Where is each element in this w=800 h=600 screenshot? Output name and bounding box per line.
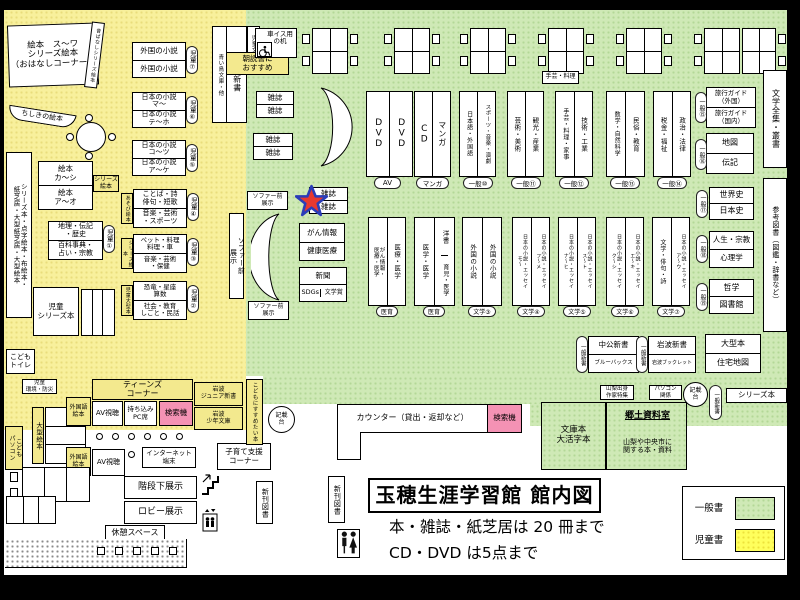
shelf-literature-5: 日本の小説・エッセイ ナ〜ヒ 日本の小説・エッセイ ス〜ト — [558, 217, 596, 306]
tag-series-ehon: シリーズ絵本 — [121, 238, 133, 269]
cell-top: 絵本 カ〜シ — [39, 162, 92, 185]
col-right: 日本の小説・エッセイ ス〜ト — [577, 218, 596, 305]
cell-top: 地図 — [707, 134, 753, 153]
stool — [151, 547, 159, 555]
wheelchair-icon — [257, 42, 272, 57]
kids-pc: こども パソコン — [5, 426, 23, 470]
stool — [169, 547, 177, 555]
col-right: 日本の小説・エッセイ エ〜キ — [625, 218, 644, 305]
col-right: 外国の小説 — [482, 218, 502, 305]
childcare-corner: 子育て支援 コーナー — [217, 443, 271, 470]
reading-table — [312, 28, 348, 74]
cell-top: 地理・伝記 ・歴史 — [49, 222, 102, 240]
cell-bottom: 百科事典・ 占い・宗教 — [49, 240, 102, 259]
cell-top: 中公新書 — [589, 337, 638, 354]
cell-row: SDGs 文学賞 — [300, 284, 346, 301]
av-booth-1: AV視聴 — [92, 401, 123, 426]
chair — [432, 56, 440, 66]
av-booth-2: AV視聴 — [92, 449, 125, 476]
reading-table — [394, 28, 430, 74]
cell-top: 洋書 — [441, 218, 448, 255]
shelf-ogata-ehon: 大型絵本 — [32, 407, 44, 464]
chair — [616, 56, 624, 66]
col-left: 日本の小説・エッセイ モ〜 — [513, 218, 531, 305]
cell-bottom: 雑誌 — [257, 104, 293, 117]
cell-bottom: 雑誌 — [254, 146, 292, 159]
cell-bottom: 旅行ガイド （国内） — [707, 107, 755, 127]
byod-pc-seat: 持ち込み PC席 — [124, 401, 157, 426]
shelf-bunko-large-print: 文庫本 大活字本 — [541, 402, 606, 470]
sofa-front-display-top: ソファー前 展示 — [247, 191, 288, 210]
new-books-shelf-2: 新刊図書 — [328, 476, 345, 523]
shelf-literature-3: 外国の小説 外国の小説 — [462, 217, 502, 306]
badge-general-13: 一般⑬ — [610, 177, 640, 189]
cell-top: ペット・料理 料理・車 — [134, 235, 186, 253]
chair — [432, 34, 440, 44]
shelf-literature-4: 日本の小説・エッセイ モ〜 日本の小説・エッセイ フ〜メ — [512, 217, 550, 306]
stool — [133, 547, 141, 555]
elevator-icon — [201, 508, 219, 532]
sofa-front-display-v: ソファー前 展示 — [229, 213, 244, 299]
col-left: 数学・自然科学 — [607, 92, 625, 176]
tag-asobi-ehon: あそび絵本 — [121, 193, 133, 224]
shelf-general-14: 税金・福祉 政治・法律 — [653, 91, 691, 177]
shelf-children-4: ことば・詩 俳句・短歌 音楽・芸術 ・スポーツ — [133, 189, 187, 228]
shelf-ehon: 絵本 カ〜シ 絵本 ア〜オ — [38, 161, 93, 210]
legend-general-swatch — [735, 497, 775, 520]
legend-general-label: 一般書 — [691, 499, 727, 519]
col-left: 手芸・料理・家事 — [556, 92, 574, 176]
cell-bottom: 健康医療 — [300, 242, 344, 261]
badge-medical-1: 医育 — [376, 306, 398, 317]
col-left: DVD — [367, 92, 389, 176]
shelf-life-religion: 人生・宗教 心理学 — [709, 231, 754, 268]
seat — [112, 433, 119, 440]
legend-children-swatch — [735, 529, 775, 552]
shelf-literature-7: 文学・俳句・詩 日本の小説・エッセイ ア〜ウ — [652, 217, 690, 306]
badge-general-14: 一般⑭ — [657, 177, 687, 189]
search-terminal-2: 検索機 — [487, 404, 522, 433]
badge-jido-2: 児童② — [187, 285, 199, 313]
shelf-children-7: 外国の小説 外国の小説 — [132, 42, 186, 78]
shelf-series-books: シリーズ本 — [726, 388, 787, 403]
col-right: 医療・医学 — [387, 218, 406, 305]
shelf-large-books: 大型本 住宅地図 — [705, 334, 761, 373]
badge-shinsho-3: 一般新書 — [709, 385, 722, 420]
loan-rule-2: CD・DVD は5点まで — [389, 541, 649, 563]
internet-terminal: インターネット 端末 — [142, 447, 196, 468]
cell-bottom: 外国の小説 — [133, 60, 185, 78]
col-right: 民俗・教育 — [625, 92, 644, 176]
cell-sdgs: SDGs — [300, 289, 321, 296]
chair — [384, 56, 392, 66]
label-pc-related: パソコン 関係 — [649, 385, 682, 400]
reading-table-group — [302, 28, 358, 74]
floor-map: シリーズ本・点字絵本・布絵本・ 紙芝居・大型紙芝居・大型絵本 絵本 ス〜ワ シリ… — [0, 0, 800, 600]
chair — [778, 56, 786, 66]
badge-av: AV — [374, 177, 401, 189]
cell-bottom: ブルーバックス — [589, 354, 638, 372]
seat — [128, 433, 135, 440]
cell-top: 日本の小説 マ〜 — [133, 93, 185, 110]
col-left: 外国の小説 — [463, 218, 482, 305]
reading-table-group — [538, 28, 594, 74]
teens-corner: ティーンズ コーナー — [92, 379, 193, 400]
shelf-series-kamishibai-strip: シリーズ本・点字絵本・布絵本・ 紙芝居・大型紙芝居・大型絵本 — [6, 152, 32, 318]
badge-general-19: 一般⑲ — [696, 283, 708, 311]
cell-bungakusho: 文学賞 — [321, 290, 346, 297]
stairs-icon — [200, 472, 220, 496]
badge-general-15: 一般⑮ — [695, 92, 707, 123]
badge-shinsho-2: 一般新書 — [636, 336, 648, 373]
reading-table-group — [460, 28, 516, 74]
label-shugei-ryori: 手芸・料理 — [542, 71, 579, 84]
shelf-magazines-2: 雑誌 雑誌 — [253, 133, 293, 160]
cell-newspaper: 新聞 — [300, 268, 346, 284]
shelf-map-biography: 地図 伝記 — [706, 133, 754, 174]
frame-top — [0, 0, 800, 10]
col-left: 文学・俳句・詩 — [653, 218, 671, 305]
col-right: マンガ — [432, 92, 450, 176]
shelf-literature-anthology: 文学全集・叢書 — [763, 70, 787, 168]
kids-toilet: こども トイレ — [6, 349, 35, 374]
shelf-magazines-1: 雑誌 雑誌 — [256, 91, 294, 118]
reading-table-group — [732, 28, 786, 74]
col-left: 日本の小説・エッセイ ク〜シ — [607, 218, 625, 305]
col-right: 技術・工業 — [574, 92, 593, 176]
chair — [694, 56, 702, 66]
badge-medical-2: 医育 — [423, 306, 445, 317]
badge-jido-4: 児童④ — [187, 193, 199, 221]
cell-top: 大型本 — [706, 335, 760, 353]
stool — [115, 547, 123, 555]
cell-bottom: 住宅地図 — [706, 353, 760, 372]
tag-foreign-ehon-1: 外国語 絵本 — [66, 397, 91, 426]
reading-table — [470, 28, 506, 74]
col-left: 青い鳥文庫・他 — [213, 27, 226, 122]
seat — [96, 433, 103, 440]
shelf-children-5: 日本の小説 コ〜ツ 日本の小説 ア〜ケ — [132, 140, 186, 176]
wheelchair-desk: 車イス用 の机 — [255, 28, 297, 58]
badge-literature-4: 文学④ — [517, 306, 545, 317]
lobby-display: ロビー展示 — [124, 501, 197, 524]
reading-table — [626, 28, 662, 74]
chair — [664, 56, 672, 66]
shelf-iwanami-shonen: 岩波 少年文庫 — [194, 407, 243, 430]
cell-top: 岩波新書 — [649, 337, 695, 354]
chair — [350, 34, 358, 44]
cell-bottom: 岩波ブックレット — [649, 354, 695, 372]
badge-jido-5: 児童⑤ — [186, 144, 198, 172]
shelf-iwanami-junior: 岩波 ジュニア新書 — [194, 382, 243, 406]
label-yamanashi-authors: 山梨出身 作家特集 — [600, 385, 634, 400]
col-left: 税金・福祉 — [654, 92, 672, 176]
badge-jido-3: 児童③ — [187, 238, 199, 266]
shelf-general-13: 数学・自然科学 民俗・教育 — [606, 91, 645, 177]
col-left: 日本の小説・エッセイ ナ〜ヒ — [559, 218, 577, 305]
shelf-dvd: DVD DVD — [366, 91, 413, 177]
reading-table-group — [616, 28, 672, 74]
sofa-crescent-upper — [313, 85, 355, 169]
chair — [10, 472, 18, 482]
rest-space-area — [5, 539, 187, 568]
badge-general-10: 一般⑩ — [463, 177, 493, 189]
badge-jido-6: 児童⑥ — [186, 96, 198, 124]
col-left: がん情報・ 医療・医学 — [369, 218, 387, 305]
locker-shelf — [6, 496, 56, 524]
chair — [694, 34, 702, 44]
under-stairs-display: 階段下展示 — [124, 476, 197, 499]
round-table — [76, 122, 106, 152]
shelf-newspaper: 新聞 SDGs 文学賞 — [299, 267, 347, 302]
shelf-iwanami-shinsho: 岩波新書 岩波ブックレット — [648, 336, 696, 373]
shelf-reference-books: 参考図書（図鑑・辞書など） — [763, 178, 787, 332]
cell-top: 哲学 — [710, 280, 753, 296]
frame-right — [787, 0, 800, 600]
service-counter: カウンター（貸出・返却など） — [337, 404, 488, 433]
cell-top: がん情報 — [300, 224, 344, 242]
cell-top: 雑誌 — [257, 92, 293, 104]
writing-stand-1: 記載 台 — [268, 406, 295, 433]
page-title: 玉穂生涯学習館 館内図 — [368, 478, 601, 513]
shelf-general-11: 芸術・美術 観光・産業 — [507, 91, 544, 177]
col-right: 日本の小説・エッセイ フ〜メ — [531, 218, 550, 305]
chair — [778, 34, 786, 44]
location-star-marker — [295, 184, 328, 217]
tag-series-ehon-2: シリーズ 絵本 — [93, 175, 119, 192]
cell-bottom: 心理学 — [710, 249, 753, 267]
cell-bottom: 日本の小説 ア〜ケ — [133, 158, 185, 176]
cell-bottom: 伝記 — [707, 153, 753, 173]
cell-top: 旅行ガイド （外国） — [707, 88, 755, 107]
cell-bottom: 日本の小説 テ〜ホ — [133, 110, 185, 128]
new-books-shelf-1: 新刊図書 — [256, 481, 273, 524]
tag-jido-ogata: 児童大型本 — [121, 285, 133, 316]
legend: 一般書 児童書 — [682, 486, 785, 560]
shelf-kids-recommend: こどもにすすめたい本 — [246, 379, 263, 445]
shelf-cd-manga: CD マンガ — [414, 91, 451, 177]
badge-general-18: 一般⑱ — [696, 235, 708, 263]
col-right: 日本の小説・エッセイ ア〜ウ — [671, 218, 690, 305]
chair — [616, 34, 624, 44]
col-left: CD — [415, 92, 432, 176]
shelf-travel-guide: 旅行ガイド （外国） 旅行ガイド （国内） — [706, 87, 756, 128]
reading-table — [548, 28, 584, 74]
chair — [302, 34, 310, 44]
col-right: スポーツ・音楽・演劇 — [477, 92, 495, 176]
chair — [460, 56, 468, 66]
col-right: 観光・産業 — [525, 92, 543, 176]
search-terminal-1: 検索機 — [159, 401, 193, 426]
frame-bottom — [0, 575, 800, 600]
cell-top: ことば・詩 俳句・短歌 — [134, 190, 186, 208]
badge-literature-6: 文学⑥ — [611, 306, 639, 317]
cell-top: 恐竜・星座 算数 — [134, 282, 186, 300]
cell-bottom: 育児・医学 — [441, 255, 448, 305]
badge-literature-7: 文学⑦ — [657, 306, 685, 317]
cell-bottom: 音楽・芸術 ・スポーツ — [134, 208, 186, 227]
cell-top: 外国の小説 — [133, 43, 185, 60]
shelf-medical-1: がん情報・ 医療・医学 医療・医学 — [368, 217, 406, 306]
chair — [384, 34, 392, 44]
shelf-medical-2: 医学・医学 洋書 育児・医学 — [414, 217, 455, 306]
frame-left — [0, 0, 4, 600]
cell-top: 人生・宗教 — [710, 232, 753, 249]
cell-top: 世界史 — [710, 188, 753, 203]
badge-shinsho-1: 一般新書 — [576, 336, 588, 373]
chair — [538, 34, 546, 44]
shelf-children-3: ペット・料理 料理・車 音楽・芸術 ・保健 — [133, 234, 187, 273]
seat — [128, 451, 135, 458]
shelf-children-1: 地理・伝記 ・歴史 百科事典・ 占い・宗教 — [48, 221, 103, 260]
badge-jido-7: 児童⑦ — [186, 46, 198, 74]
badge-manga: マンガ — [416, 177, 449, 189]
col-left: 芸術・美術 — [508, 92, 525, 176]
shelf-cancer-info: がん情報 健康医療 — [299, 223, 345, 261]
shelf-history: 世界史 日本史 — [709, 187, 754, 220]
service-counter-leg — [337, 432, 361, 460]
col-right: DVD — [389, 92, 412, 176]
shelf-children-6: 日本の小説 マ〜 日本の小説 テ〜ホ — [132, 92, 186, 128]
shelf-philosophy: 哲学 図書館 — [709, 279, 754, 314]
badge-general-12: 一般⑫ — [559, 177, 589, 189]
col-right: 政治・法律 — [672, 92, 691, 176]
cell-bottom: 日本史 — [710, 203, 753, 219]
col-left: 日本語・外国語 — [460, 92, 477, 176]
cell-bottom: 図書館 — [710, 296, 753, 313]
chair — [538, 56, 546, 66]
col-left: 医学・医学 — [415, 218, 434, 305]
shelf-general-10: 日本語・外国語 スポーツ・音楽・演劇 — [459, 91, 496, 177]
badge-general-16: 一般⑯ — [695, 139, 707, 170]
col-right: 洋書 育児・医学 — [434, 218, 454, 305]
shelf-children-2: 恐竜・星座 算数 社会・教育 しごと・民話 — [133, 281, 187, 320]
stool — [97, 547, 105, 555]
seat — [176, 433, 183, 440]
loan-rule-1: 本・雑誌・紙芝居は 20 冊まで — [389, 515, 649, 537]
sofa-crescent-lower — [251, 211, 287, 303]
cell-bottom: 絵本 ア〜オ — [39, 185, 92, 209]
shelf-slats — [81, 289, 115, 336]
chair — [664, 34, 672, 44]
reading-table — [742, 28, 776, 74]
chair — [302, 56, 310, 66]
chair — [66, 133, 74, 141]
sofa-front-display-bottom: ソファー前 展示 — [248, 301, 289, 320]
chair — [108, 133, 116, 141]
chair — [586, 34, 594, 44]
shelf-general-12: 手芸・料理・家事 技術・工業 — [555, 91, 593, 177]
label-jido-kankyo: 児童 環境・防災 — [22, 379, 57, 394]
seat — [160, 433, 167, 440]
cell-top: 雑誌 — [254, 134, 292, 146]
badge-general-17: 一般⑰ — [696, 190, 708, 218]
cell-bottom: 音楽・芸術 ・保健 — [134, 253, 186, 272]
local-materials-title: 郷土資料室 — [607, 409, 688, 423]
badge-literature-5: 文学⑤ — [563, 306, 591, 317]
restroom-icon — [337, 529, 360, 558]
chair — [508, 56, 516, 66]
chair — [586, 56, 594, 66]
chair — [85, 152, 93, 160]
legend-children-label: 児童書 — [691, 531, 727, 551]
chair — [460, 34, 468, 44]
cell-top: 日本の小説 コ〜ツ — [133, 141, 185, 158]
badge-general-11: 一般⑪ — [511, 177, 541, 189]
badge-jido-1: 児童① — [103, 225, 115, 253]
local-materials-room: 郷土資料室 山梨や中央市に 関する本・資料 — [606, 402, 687, 470]
seat — [144, 433, 151, 440]
shelf-literature-6: 日本の小説・エッセイ ク〜シ 日本の小説・エッセイ エ〜キ — [606, 217, 644, 306]
chair — [350, 56, 358, 66]
chair — [508, 34, 516, 44]
badge-literature-3: 文学③ — [468, 306, 496, 317]
shelf-jido-series: 児童 シリーズ本 — [33, 287, 79, 336]
local-materials-desc: 山梨や中央市に 関する本・資料 — [607, 429, 688, 465]
shelf-chuko-shinsho: 中公新書 ブルーバックス — [588, 336, 639, 373]
chair — [85, 114, 93, 122]
reading-table-group — [384, 28, 440, 74]
cell-bottom: 社会・教育 しごと・民話 — [134, 300, 186, 319]
